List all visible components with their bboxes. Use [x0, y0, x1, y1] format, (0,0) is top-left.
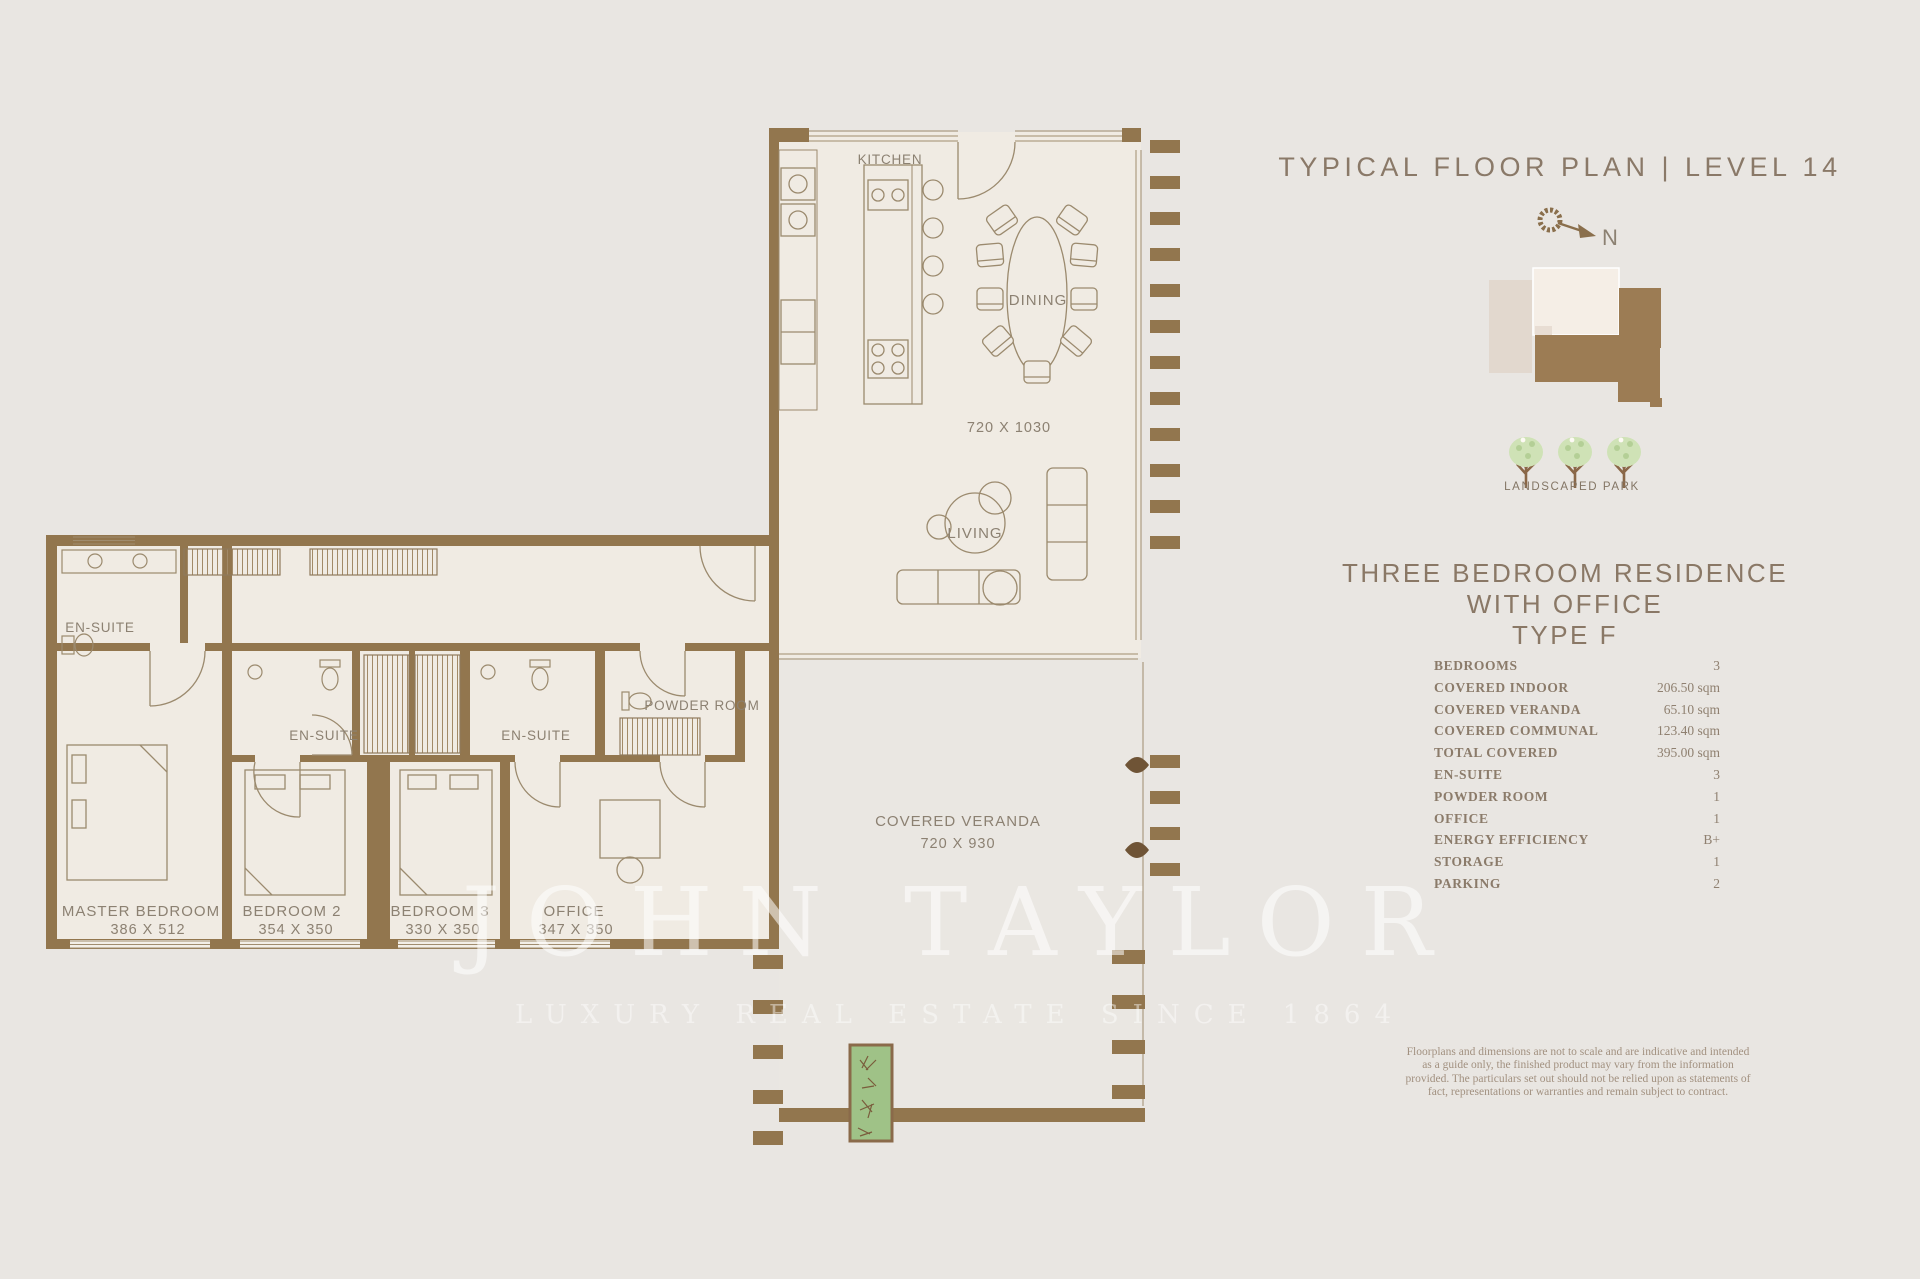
compass-icon: N [1520, 200, 1630, 255]
compass-north-label: N [1602, 225, 1618, 250]
landscaped-park-caption: LANDSCAPED PARK [1462, 481, 1682, 493]
spec-label: POWDER ROOM [1434, 789, 1548, 805]
residence-heading: THREE BEDROOM RESIDENCE WITH OFFICE TYPE… [1300, 558, 1830, 651]
spec-row: POWDER ROOM1 [1434, 789, 1720, 811]
living-label: LIVING [947, 525, 1002, 542]
spec-label: ENERGY EFFICIENCY [1434, 832, 1589, 848]
spec-row: PARKING2 [1434, 876, 1720, 898]
ensuite-2-label: EN-SUITE [289, 728, 358, 743]
bedroom-2-label: BEDROOM 2 [242, 903, 341, 920]
spec-row: TOTAL COVERED395.00 sqm [1434, 745, 1720, 767]
spec-value: 2 [1713, 876, 1720, 892]
spec-value: 3 [1713, 767, 1720, 783]
spec-label: PARKING [1434, 876, 1501, 892]
veranda-label: COVERED VERANDA [875, 813, 1041, 830]
spec-row: COVERED VERANDA65.10 sqm [1434, 702, 1720, 724]
spec-value: 1 [1713, 854, 1720, 870]
spec-value: 123.40 sqm [1657, 723, 1720, 739]
spec-label: STORAGE [1434, 854, 1504, 870]
specs-table: BEDROOMS3 COVERED INDOOR206.50 sqm COVER… [1434, 658, 1720, 898]
dining-dimensions: 720 X 1030 [967, 420, 1051, 436]
spec-label: BEDROOMS [1434, 658, 1518, 674]
spec-row: COVERED COMMUNAL123.40 sqm [1434, 723, 1720, 745]
ensuite-master-label: EN-SUITE [65, 620, 134, 635]
bedroom-3-label: BEDROOM 3 [390, 903, 489, 920]
spec-label: COVERED COMMUNAL [1434, 723, 1598, 739]
dining-label: DINING [1009, 292, 1068, 309]
spec-row: COVERED INDOOR206.50 sqm [1434, 680, 1720, 702]
spec-label: OFFICE [1434, 811, 1489, 827]
kitchen-label: KITCHEN [858, 152, 923, 167]
veranda-dimensions: 720 X 930 [920, 836, 995, 852]
spec-value: 3 [1713, 658, 1720, 674]
page-title: TYPICAL FLOOR PLAN | LEVEL 14 [1250, 152, 1870, 183]
spec-value: 1 [1713, 811, 1720, 827]
spec-value: 65.10 sqm [1664, 702, 1720, 718]
bedroom-3-dimensions: 330 X 350 [405, 922, 480, 938]
master-bedroom-dimensions: 386 X 512 [110, 922, 185, 938]
spec-value: 395.00 sqm [1657, 745, 1720, 761]
disclaimer-text: Floorplans and dimensions are not to sca… [1402, 1046, 1754, 1100]
spec-row: STORAGE1 [1434, 854, 1720, 876]
keyplan-diagram [1480, 260, 1680, 415]
spec-label: COVERED VERANDA [1434, 702, 1581, 718]
ensuite-3-label: EN-SUITE [501, 728, 570, 743]
spec-label: COVERED INDOOR [1434, 680, 1569, 696]
spec-value: 206.50 sqm [1657, 680, 1720, 696]
bedroom-2-dimensions: 354 X 350 [258, 922, 333, 938]
residence-heading-line1: THREE BEDROOM RESIDENCE WITH OFFICE [1300, 558, 1830, 620]
spec-label: EN-SUITE [1434, 767, 1503, 783]
powder-room-label: POWDER ROOM [644, 698, 759, 713]
master-bedroom-label: MASTER BEDROOM [62, 903, 220, 920]
veranda-floor [779, 658, 1141, 1108]
spec-row: BEDROOMS3 [1434, 658, 1720, 680]
spec-label: TOTAL COVERED [1434, 745, 1558, 761]
spec-row: OFFICE1 [1434, 811, 1720, 833]
spec-row: ENERGY EFFICIENCYB+ [1434, 832, 1720, 854]
residence-heading-line2: TYPE F [1300, 620, 1830, 651]
office-label: OFFICE [544, 903, 605, 920]
spec-value: 1 [1713, 789, 1720, 805]
floor-plan-page: KITCHEN DINING 720 X 1030 LIVING COVERED… [0, 0, 1920, 1279]
office-dimensions: 347 X 350 [538, 922, 613, 938]
spec-row: EN-SUITE3 [1434, 767, 1720, 789]
spec-value: B+ [1703, 832, 1720, 848]
